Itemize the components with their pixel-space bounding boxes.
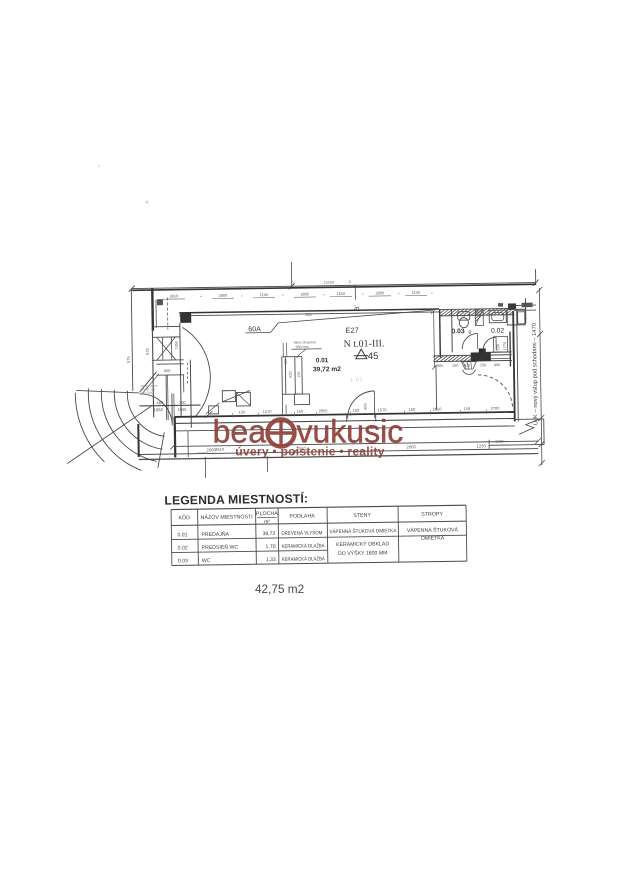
svg-text:=: = xyxy=(241,294,243,298)
svg-text:39,72 m2: 39,72 m2 xyxy=(313,366,341,373)
svg-text:150: 150 xyxy=(297,372,301,378)
svg-text:800: 800 xyxy=(363,403,367,409)
svg-text:630: 630 xyxy=(495,343,500,351)
svg-text:2850: 2850 xyxy=(375,290,385,295)
svg-text:1230: 1230 xyxy=(495,440,504,444)
svg-text:DREVENÁ VLYSOM: DREVENÁ VLYSOM xyxy=(281,529,322,537)
svg-text:150: 150 xyxy=(480,363,486,367)
svg-text:=: = xyxy=(362,292,364,296)
svg-text:KERAMICKÁ DLAŽBA: KERAMICKÁ DLAŽBA xyxy=(282,541,326,550)
svg-text:552: 552 xyxy=(305,312,313,317)
svg-text:1950: 1950 xyxy=(175,341,179,350)
svg-text:1.01: 1.01 xyxy=(350,377,364,384)
svg-text:STROPY: STROPY xyxy=(421,511,443,517)
svg-text:1060: 1060 xyxy=(154,407,164,412)
svg-text:900: 900 xyxy=(164,369,170,373)
svg-text:2850: 2850 xyxy=(433,406,443,411)
svg-text:2700: 2700 xyxy=(491,406,501,411)
svg-text:g: g xyxy=(468,330,471,335)
svg-text:E27: E27 xyxy=(345,326,358,335)
svg-text:0.02: 0.02 xyxy=(491,328,505,335)
svg-text:575: 575 xyxy=(126,356,131,364)
svg-text:0.01: 0.01 xyxy=(177,532,187,538)
svg-text:PREDAJŇA: PREDAJŇA xyxy=(201,531,229,538)
svg-text:g: g xyxy=(349,279,351,283)
svg-text:45: 45 xyxy=(368,351,379,362)
svg-text:WC: WC xyxy=(202,558,211,564)
svg-text:=: = xyxy=(282,293,284,297)
svg-text:60A: 60A xyxy=(248,326,261,333)
svg-text:150: 150 xyxy=(353,408,361,413)
svg-text:VÁPENNÁ ŠTUKOVÁ OMIETKA: VÁPENNÁ ŠTUKOVÁ OMIETKA xyxy=(329,527,397,535)
svg-text:1140: 1140 xyxy=(412,290,421,295)
svg-text:1,33: 1,33 xyxy=(266,557,276,563)
svg-text:150: 150 xyxy=(452,364,458,368)
svg-text:0.03: 0.03 xyxy=(451,328,465,335)
svg-text:150: 150 xyxy=(464,406,472,411)
svg-text:KERAMICKÁ DLAŽBA: KERAMICKÁ DLAŽBA xyxy=(282,554,326,563)
svg-text:150: 150 xyxy=(284,359,288,365)
svg-text:0.02: 0.02 xyxy=(178,545,188,551)
svg-text:300: 300 xyxy=(179,401,185,405)
svg-text:900: 900 xyxy=(494,363,500,367)
svg-text:2850: 2850 xyxy=(219,293,229,298)
svg-text:KÓD: KÓD xyxy=(178,514,190,521)
svg-text:1945: 1945 xyxy=(178,407,188,412)
svg-text:13250: 13250 xyxy=(323,281,334,285)
svg-text:=: = xyxy=(398,292,400,296)
svg-text:2610: 2610 xyxy=(170,293,180,298)
svg-text:STENY: STENY xyxy=(353,513,371,519)
svg-text:=: = xyxy=(200,295,202,299)
svg-text:900: 900 xyxy=(437,364,443,368)
svg-text:LEGENDA MIESTNOSTÍ:: LEGENDA MIESTNOSTÍ: xyxy=(164,490,308,507)
svg-text:1,70: 1,70 xyxy=(265,544,275,550)
svg-text:0.01: 0.01 xyxy=(316,357,329,364)
svg-text:OMIETKA: OMIETKA xyxy=(421,535,445,541)
svg-text:600 mm: 600 mm xyxy=(296,345,309,349)
svg-text:2000: 2000 xyxy=(406,444,416,449)
svg-text:630: 630 xyxy=(289,371,293,377)
svg-text:DO VÝŠKY 1600 MM: DO VÝŠKY 1600 MM xyxy=(338,549,388,557)
svg-text:42,75 m2: 42,75 m2 xyxy=(255,582,304,596)
svg-text:150: 150 xyxy=(409,407,417,412)
svg-text:0.03: 0.03 xyxy=(178,558,188,564)
svg-text:úvery • poistenie • reality: úvery • poistenie • reality xyxy=(235,445,384,459)
svg-text:1140: 1140 xyxy=(260,292,269,297)
svg-text:N t.01-III.: N t.01-III. xyxy=(344,338,385,350)
svg-text:=: = xyxy=(431,291,433,295)
svg-text:VÁPENNÁ ŠTUKOVÁ: VÁPENNÁ ŠTUKOVÁ xyxy=(407,526,459,534)
svg-text:2850: 2850 xyxy=(301,291,311,296)
svg-text:575: 575 xyxy=(145,347,150,355)
svg-text:PLOCHA: PLOCHA xyxy=(256,511,278,517)
svg-text:1770: 1770 xyxy=(502,341,507,351)
svg-text:KERAMICKÝ OBKLAD: KERAMICKÝ OBKLAD xyxy=(336,540,389,548)
svg-text:39,72: 39,72 xyxy=(262,531,275,537)
svg-text:PREDSIEŇ WC: PREDSIEŇ WC xyxy=(202,544,239,552)
svg-text:1570: 1570 xyxy=(378,407,388,412)
svg-text:ÚJK – nový vstup pod schodami: ÚJK – nový vstup pod schodami – 1470 xyxy=(531,323,540,425)
svg-text:m²: m² xyxy=(264,519,270,525)
svg-text:1230: 1230 xyxy=(476,443,486,448)
svg-text:1610: 1610 xyxy=(337,291,347,296)
svg-text:PODLAHA: PODLAHA xyxy=(289,513,315,519)
svg-text:=: = xyxy=(323,293,325,297)
svg-text:NÁZOV MIESTNOSTI: NÁZOV MIESTNOSTI xyxy=(201,513,253,521)
